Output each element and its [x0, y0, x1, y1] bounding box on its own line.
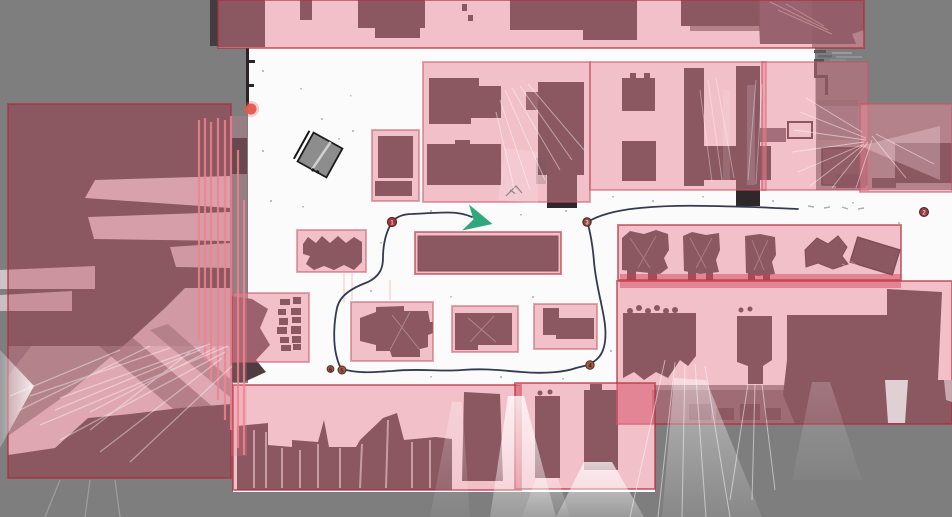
svg-text:6: 6 — [329, 367, 332, 373]
